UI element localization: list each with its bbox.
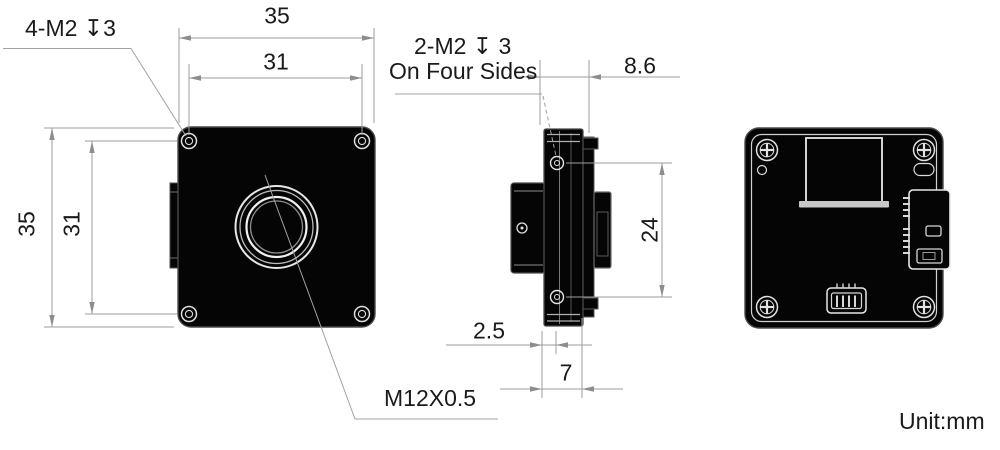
dim-side-hole-pitch-label: 24: [639, 217, 662, 243]
lens-thread-label: M12X0.5: [384, 387, 476, 410]
bottom-header-connector: [827, 284, 866, 314]
side-lens-barrel: [511, 183, 545, 273]
front-view: [170, 127, 375, 327]
back-view: [745, 128, 950, 328]
sensor-pad-row: [799, 201, 889, 208]
engineering-drawing: 35 31 35 31 4-M2 ↧3 2-M2 ↧ 3 On Four Sid…: [0, 0, 1000, 450]
side-mount-holes-label-line1: 2-M2 ↧ 3: [414, 35, 511, 58]
dim-body-depth-label: 7: [560, 362, 573, 385]
dim-front-hole-pitch-v-label: 31: [61, 211, 84, 237]
front-holes-leader: [3, 49, 186, 137]
dim-side-top-depth-label: 8.6: [624, 55, 656, 78]
side-view: [511, 129, 611, 326]
dim-front-width-label: 35: [264, 5, 290, 28]
dim-front-hole-pitch-h-label: 31: [263, 51, 289, 74]
unit-note: Unit:mm: [899, 410, 985, 433]
dim-plate-thickness-label: 2.5: [473, 320, 505, 343]
usb-connector: [903, 190, 950, 269]
dim-front-height-label: 35: [16, 211, 39, 237]
sensor-shield: [806, 138, 882, 202]
side-mount-holes-label-line2: On Four Sides: [389, 60, 537, 83]
front-mount-holes-label: 4-M2 ↧3: [25, 17, 116, 40]
front-body: [178, 127, 375, 327]
side-pcb: [583, 137, 594, 317]
